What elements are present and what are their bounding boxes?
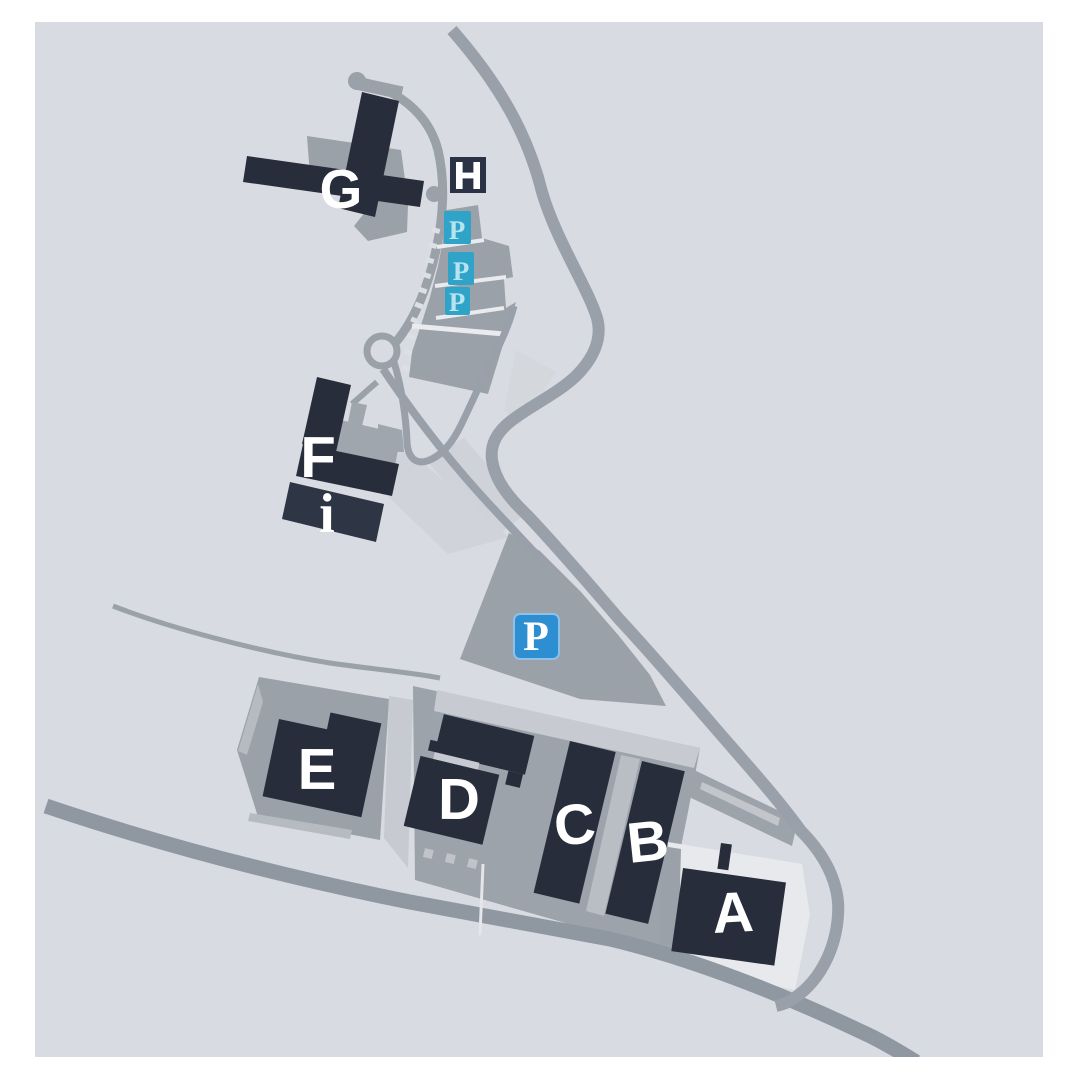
svg-text:P: P: [449, 287, 466, 317]
svg-text:C: C: [551, 791, 599, 859]
svg-text:A: A: [711, 880, 755, 946]
svg-text:P: P: [453, 256, 470, 286]
svg-text:B: B: [624, 808, 672, 876]
svg-text:E: E: [298, 737, 337, 802]
svg-text:F: F: [300, 425, 336, 490]
svg-text:D: D: [438, 767, 480, 832]
svg-text:P: P: [523, 614, 549, 660]
svg-text:i: i: [319, 483, 335, 545]
svg-text:P: P: [449, 215, 466, 245]
svg-text:G: G: [320, 158, 363, 220]
